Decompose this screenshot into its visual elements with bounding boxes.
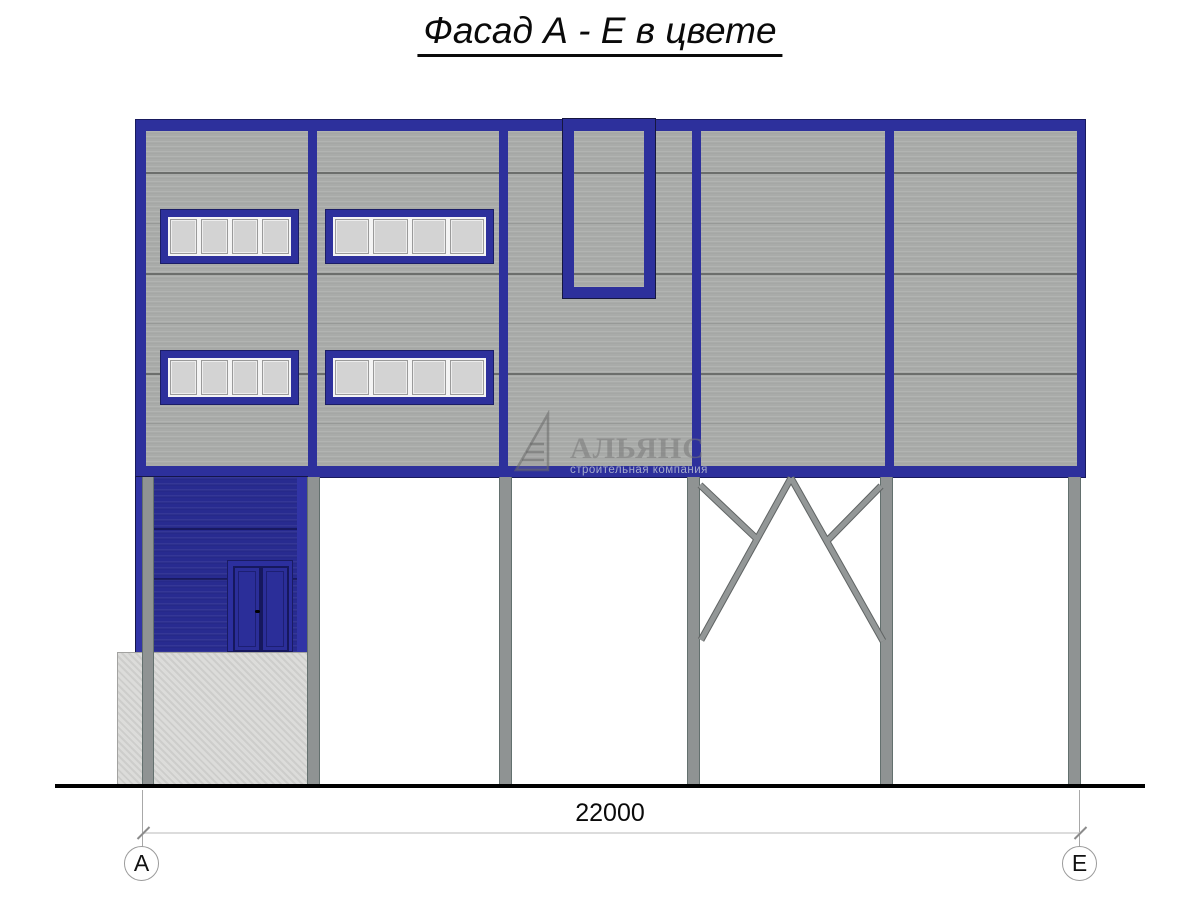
window-pane	[262, 360, 289, 395]
window-pane	[335, 360, 369, 395]
steel-column	[307, 477, 320, 785]
panel-joint	[146, 423, 1077, 424]
dimension-line	[143, 832, 1080, 834]
door-leaf	[261, 566, 289, 652]
facade-mullion	[499, 131, 508, 466]
window-pane	[450, 360, 484, 395]
window-pane	[373, 219, 407, 254]
window-pane	[335, 219, 369, 254]
extension-line-e	[1079, 790, 1080, 847]
window-pane	[232, 360, 259, 395]
ribbon-window	[161, 210, 298, 263]
axis-marker-e: Е	[1062, 846, 1097, 881]
axis-marker-a: А	[124, 846, 159, 881]
panel-joint	[574, 223, 644, 224]
window-sash	[333, 217, 486, 256]
ground-line	[55, 784, 1145, 788]
drawing-canvas: Фасад А - Е в цвете	[0, 0, 1200, 900]
extension-line-a	[142, 790, 143, 847]
window-pane	[450, 219, 484, 254]
steel-column	[1068, 477, 1081, 785]
diagonal-bracing	[685, 470, 895, 650]
ribbon-window	[161, 351, 298, 404]
window-sash	[333, 358, 486, 397]
window-pane	[170, 360, 197, 395]
panel-joint	[574, 273, 644, 275]
window-sash	[168, 217, 291, 256]
dimension-value: 22000	[560, 799, 660, 828]
window-pane	[373, 360, 407, 395]
window-pane	[412, 360, 446, 395]
window-pane	[201, 360, 228, 395]
ribbon-window	[326, 210, 493, 263]
axis-label: Е	[1072, 850, 1087, 877]
panel-joint	[146, 323, 1077, 324]
facade-mullion	[692, 131, 701, 466]
window-pane	[262, 219, 289, 254]
window-sash	[168, 358, 291, 397]
drawing-title: Фасад А - Е в цвете	[417, 10, 782, 57]
axis-label: А	[134, 850, 149, 877]
door-panel	[238, 571, 256, 647]
facade-recess-panel	[574, 131, 644, 287]
window-pane	[170, 219, 197, 254]
steel-column	[142, 477, 154, 785]
window-pane	[232, 219, 259, 254]
facade-mullion	[885, 131, 894, 466]
window-pane	[201, 219, 228, 254]
facade-mullion	[308, 131, 317, 466]
panel-joint	[574, 172, 644, 174]
window-pane	[412, 219, 446, 254]
wall-joint	[142, 528, 297, 530]
door-leaf	[233, 566, 261, 652]
ribbon-window	[326, 351, 493, 404]
door-handle	[255, 610, 260, 613]
door-panel	[266, 571, 284, 647]
entrance-double-door	[233, 566, 289, 652]
steel-column	[499, 477, 512, 785]
